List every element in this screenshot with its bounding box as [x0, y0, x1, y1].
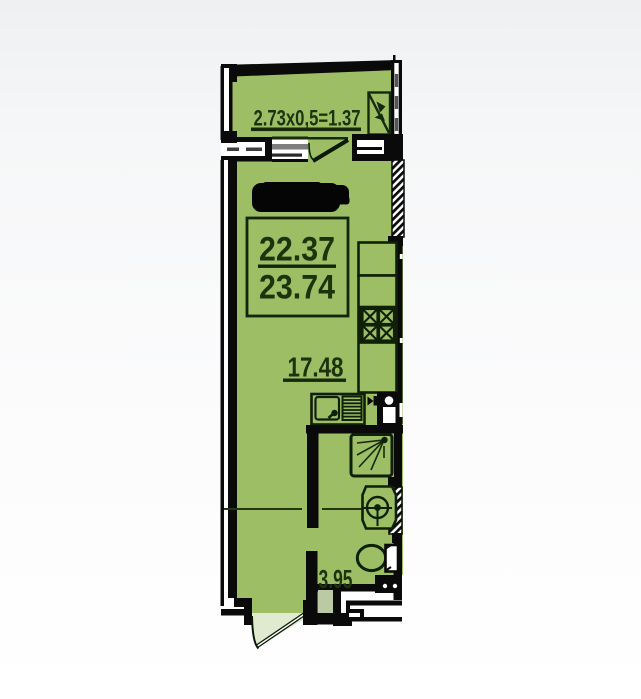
svg-text:22.37: 22.37: [259, 231, 335, 269]
svg-text:2.73x0,5=1.37: 2.73x0,5=1.37: [254, 106, 361, 131]
svg-text:17.48: 17.48: [288, 352, 344, 383]
svg-text:3.95: 3.95: [319, 564, 353, 594]
svg-text:23.74: 23.74: [259, 269, 335, 307]
